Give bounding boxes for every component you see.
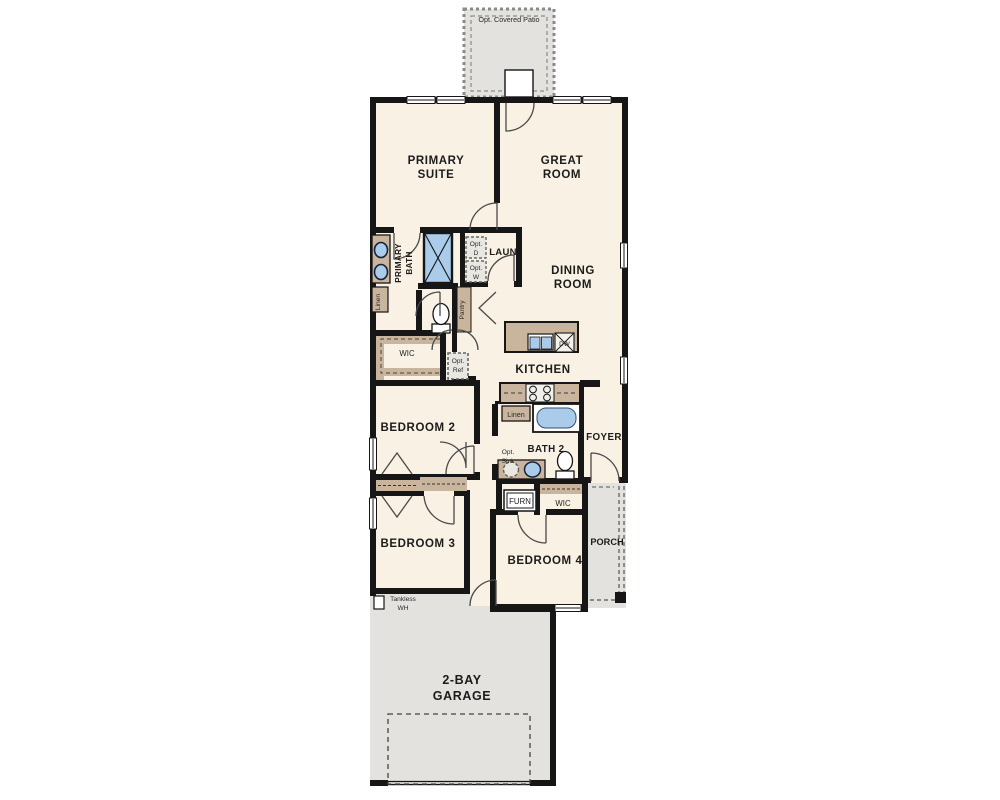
wic-primary-label: WIC — [399, 349, 415, 358]
room-label-primary-bath: BATH — [405, 251, 414, 274]
opt-ref-box — [448, 353, 468, 379]
room-label-kitchen: KITCHEN — [515, 364, 570, 376]
opt-dryer-label: Opt. — [470, 241, 483, 248]
patio-vestibule — [505, 70, 533, 97]
tankless-water-heater — [374, 596, 384, 609]
room-label-dining: ROOM — [554, 279, 592, 291]
room-label-garage: GARAGE — [433, 689, 491, 703]
room-label-bath2: BATH 2 — [527, 444, 564, 455]
opt-washer-label: W — [473, 274, 480, 281]
room-label-great-room: GREAT — [541, 155, 583, 167]
toilet-tank — [432, 324, 450, 333]
room-label-bedroom4: BEDROOM 4 — [507, 555, 582, 567]
opt-ref-label: Opt. — [452, 358, 465, 365]
linen-hall-label: Linen — [507, 410, 525, 419]
tankless-wh-label: Tankless — [390, 596, 416, 603]
room-label-foyer: FOYER — [586, 432, 622, 443]
toilet-tank — [556, 471, 574, 479]
room-label-bedroom3: BEDROOM 3 — [380, 538, 455, 550]
room-label-bedroom2: BEDROOM 2 — [380, 422, 455, 434]
room-label-primary-bath: PRIMARY — [394, 243, 403, 283]
porch-post — [615, 592, 626, 603]
bathtub-basin — [537, 408, 576, 428]
toilet-icon — [433, 304, 449, 325]
floor-plan-svg: Opt. Covered Patio PRIMARY SUITE GREAT R… — [0, 0, 1000, 800]
room-label-great-room: ROOM — [543, 169, 581, 181]
wic-shelf — [376, 336, 440, 344]
wic2-shelf — [540, 484, 582, 494]
pantry-label: Pantry — [459, 300, 466, 320]
furnace-label: FURN — [509, 497, 531, 506]
opt-sink-label: Sink — [502, 458, 516, 465]
room-label-garage: 2-BAY — [442, 673, 481, 687]
linen-primary-label: Linen — [375, 294, 382, 310]
patio-label: Opt. Covered Patio — [478, 15, 539, 24]
opt-ref-label: Ref — [453, 367, 463, 374]
sink-icon — [375, 243, 388, 258]
dishwasher-label: DW — [559, 341, 571, 348]
wic-shelf — [376, 368, 440, 376]
room-label-primary-suite: PRIMARY — [408, 155, 465, 167]
wic-bedroom4-label: WIC — [555, 499, 571, 508]
floor-plan-canvas: Opt. Covered Patio PRIMARY SUITE GREAT R… — [0, 0, 1000, 800]
room-label-primary-suite: SUITE — [418, 169, 455, 181]
room-label-laundry: LAUN — [489, 247, 517, 258]
opt-dryer-label: D — [474, 250, 479, 257]
garage-door — [388, 780, 530, 786]
room-label-porch: PORCH — [590, 537, 624, 547]
sink-icon — [375, 265, 388, 280]
opt-sink-label: Opt. — [502, 449, 515, 456]
tankless-wh-label: WH — [398, 605, 409, 612]
room-label-dining: DINING — [551, 265, 595, 277]
sink-icon — [525, 462, 541, 477]
opt-washer-label: Opt. — [470, 265, 483, 272]
